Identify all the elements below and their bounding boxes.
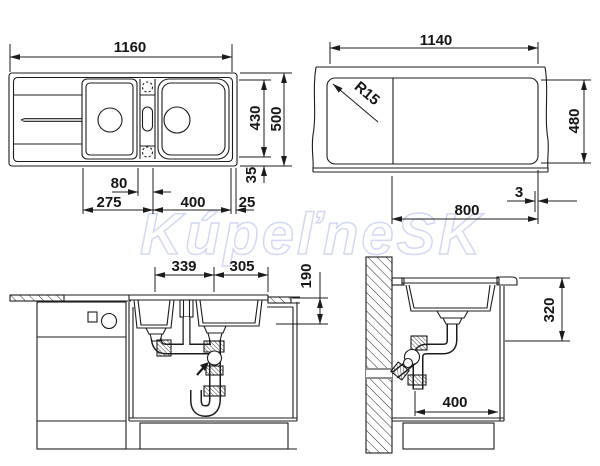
small-bowl-drain bbox=[98, 108, 122, 132]
plan-view: 1160 430 500 80 275 400 25 35 bbox=[9, 39, 292, 214]
dim-side-clearance-height: 320 bbox=[541, 297, 558, 322]
dim-front-right-drain: 305 bbox=[229, 258, 254, 275]
trap-union bbox=[208, 351, 222, 365]
sink-side-section bbox=[402, 278, 499, 311]
dim-plan-depth: 500 bbox=[268, 106, 285, 131]
center-bridge bbox=[140, 79, 155, 159]
front-section-view: 339 305 190 bbox=[10, 258, 328, 449]
dim-cutout-gap: 3 bbox=[515, 184, 523, 201]
technical-drawing-canvas: KúpeľneSK bbox=[0, 0, 600, 466]
pipe-nut bbox=[204, 386, 225, 396]
sink-outer-edge bbox=[9, 73, 237, 166]
side-section-view: 320 400 bbox=[366, 257, 570, 453]
counter-stub-right bbox=[497, 277, 517, 285]
sink-rim-inner bbox=[14, 78, 233, 162]
drainboard bbox=[14, 95, 82, 144]
right-strainer bbox=[204, 326, 226, 333]
pipe-nut bbox=[204, 341, 224, 352]
dim-plan-drainboard: 275 bbox=[96, 194, 121, 211]
dim-plan-bowls-span: 400 bbox=[180, 194, 205, 211]
center-fitting bbox=[180, 300, 193, 317]
plinth bbox=[140, 423, 288, 449]
dim-cutout-radius: R15 bbox=[351, 78, 383, 109]
main-bowl-drain bbox=[164, 107, 190, 133]
dim-plan-tap-offset: 80 bbox=[111, 175, 128, 192]
strainer bbox=[437, 311, 468, 318]
dim-cutout-span: 800 bbox=[454, 202, 479, 219]
tap-hole-bottom bbox=[143, 147, 153, 157]
waste-plumbing bbox=[146, 317, 226, 411]
dim-front-left-drain: 339 bbox=[171, 258, 196, 275]
cutout-view: 1140 R15 480 3 800 bbox=[312, 32, 591, 224]
dim-cutout-height: 480 bbox=[566, 108, 583, 133]
pipe-nut bbox=[206, 366, 223, 375]
dim-cutout-width: 1140 bbox=[420, 32, 453, 49]
dim-plan-edge: 25 bbox=[239, 194, 256, 211]
right-bowl-outline bbox=[196, 300, 262, 326]
dishwasher-cabinet bbox=[37, 302, 126, 449]
pipe-nut bbox=[157, 340, 171, 356]
dim-front-bowl-depth: 190 bbox=[298, 263, 315, 288]
dim-plan-width: 1160 bbox=[114, 39, 147, 56]
pipe-nut bbox=[411, 336, 427, 350]
cutout-dimensions bbox=[330, 42, 591, 224]
overflow-slot bbox=[143, 107, 153, 131]
tap-hole-top bbox=[143, 82, 153, 92]
dim-plan-rim: 35 bbox=[243, 167, 260, 184]
small-bowl bbox=[82, 79, 137, 159]
dim-side-clearance-width: 400 bbox=[442, 394, 467, 411]
countertop-right bbox=[268, 297, 291, 303]
countertop-slab bbox=[312, 67, 548, 172]
wall bbox=[366, 257, 392, 453]
plinth bbox=[403, 423, 494, 449]
sink-dimension-drawing: KúpeľneSK bbox=[0, 0, 600, 466]
control-square bbox=[88, 312, 97, 322]
control-knob bbox=[102, 314, 117, 329]
main-bowl bbox=[158, 79, 229, 159]
left-strainer bbox=[146, 328, 166, 334]
dim-plan-bowl-height: 430 bbox=[247, 105, 264, 130]
countertop-left bbox=[10, 295, 64, 301]
side-plumbing bbox=[391, 311, 468, 389]
pipe-nut bbox=[408, 375, 426, 385]
sink-section bbox=[129, 295, 268, 328]
